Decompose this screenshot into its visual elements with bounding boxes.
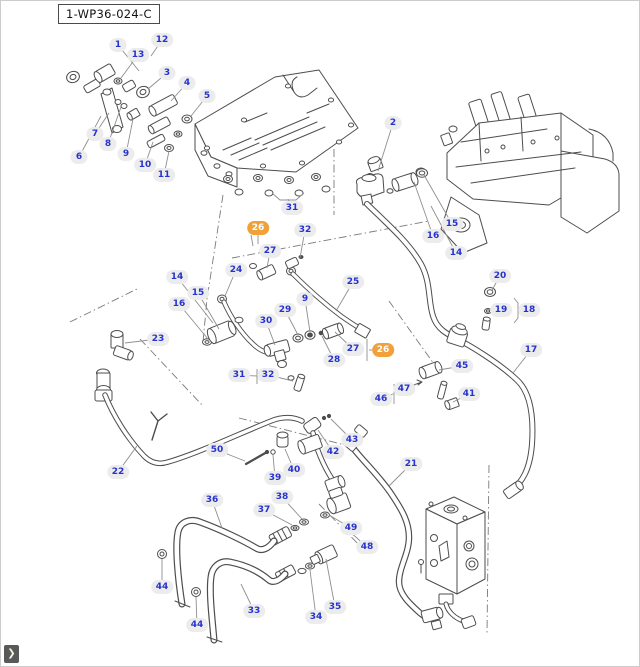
part-callout-44[interactable]: 44 — [151, 580, 173, 594]
parts-diagram-page: 1-WP36-024-C 112133457869101123126322724… — [0, 0, 640, 667]
part-callout-37[interactable]: 37 — [253, 503, 275, 517]
next-page-button[interactable]: ❯ — [4, 645, 19, 663]
part-callout-30[interactable]: 30 — [255, 314, 277, 328]
part-callout-11[interactable]: 11 — [153, 168, 175, 182]
part-callout-15[interactable]: 15 — [441, 217, 463, 231]
part-callout-3[interactable]: 3 — [159, 66, 176, 80]
part-callout-35[interactable]: 35 — [324, 600, 346, 614]
part-callout-2[interactable]: 2 — [385, 116, 402, 130]
part-callout-9[interactable]: 9 — [297, 292, 314, 306]
part-callout-48[interactable]: 48 — [356, 540, 378, 554]
diagram-code-label: 1-WP36-024-C — [58, 4, 160, 24]
hose-33 — [207, 562, 285, 642]
part-callout-16[interactable]: 16 — [422, 229, 444, 243]
part-callout-15[interactable]: 15 — [187, 286, 209, 300]
part-callout-23[interactable]: 23 — [147, 332, 169, 346]
chevron-right-icon: ❯ — [7, 648, 15, 659]
part-callout-19[interactable]: 19 — [490, 303, 512, 317]
part-callout-49[interactable]: 49 — [340, 521, 362, 535]
part-callout-22[interactable]: 22 — [107, 465, 129, 479]
part-callout-27[interactable]: 27 — [259, 244, 281, 258]
part-callout-20[interactable]: 20 — [489, 269, 511, 283]
part-callout-25[interactable]: 25 — [342, 275, 364, 289]
part-callout-4[interactable]: 4 — [179, 76, 196, 90]
mounting-plate — [195, 70, 358, 196]
part-callout-42[interactable]: 42 — [322, 445, 344, 459]
part-callout-33[interactable]: 33 — [243, 604, 265, 618]
part-callout-40[interactable]: 40 — [283, 463, 305, 477]
part-callout-9[interactable]: 9 — [118, 147, 135, 161]
part-callout-26[interactable]: 26 — [247, 221, 269, 235]
part-callout-14[interactable]: 14 — [166, 270, 188, 284]
part-callout-6[interactable]: 6 — [71, 150, 88, 164]
part-callout-1[interactable]: 1 — [110, 38, 127, 52]
part-callout-43[interactable]: 43 — [341, 433, 363, 447]
part-callout-38[interactable]: 38 — [271, 490, 293, 504]
part-callout-10[interactable]: 10 — [134, 158, 156, 172]
part-callout-21[interactable]: 21 — [400, 457, 422, 471]
part-callout-18[interactable]: 18 — [518, 303, 540, 317]
part-callout-29[interactable]: 29 — [274, 303, 296, 317]
inlet-fitting-group — [356, 155, 427, 205]
part-callout-14[interactable]: 14 — [445, 246, 467, 260]
part-callout-13[interactable]: 13 — [127, 48, 149, 62]
exploded-view-drawing — [1, 1, 640, 667]
connector-stack-group — [246, 414, 351, 582]
part-callout-36[interactable]: 36 — [201, 493, 223, 507]
part-callout-26[interactable]: 26 — [372, 343, 394, 357]
part-callout-12[interactable]: 12 — [151, 33, 173, 47]
part-callout-24[interactable]: 24 — [225, 263, 247, 277]
part-callout-45[interactable]: 45 — [451, 359, 473, 373]
part-callout-8[interactable]: 8 — [100, 137, 117, 151]
part-callout-39[interactable]: 39 — [264, 471, 286, 485]
part-callout-28[interactable]: 28 — [323, 353, 345, 367]
part-callout-34[interactable]: 34 — [305, 610, 327, 624]
part-callout-31[interactable]: 31 — [281, 201, 303, 215]
part-callout-47[interactable]: 47 — [393, 382, 415, 396]
part-callout-32[interactable]: 32 — [294, 223, 316, 237]
part-callout-17[interactable]: 17 — [520, 343, 542, 357]
part-callout-31[interactable]: 31 — [228, 368, 250, 382]
part-callout-41[interactable]: 41 — [458, 387, 480, 401]
part-callout-5[interactable]: 5 — [199, 89, 216, 103]
part-callout-32[interactable]: 32 — [257, 368, 279, 382]
part-callout-50[interactable]: 50 — [206, 443, 228, 457]
plate-fasteners — [224, 174, 331, 197]
part-callout-44[interactable]: 44 — [186, 618, 208, 632]
part-callout-46[interactable]: 46 — [370, 392, 392, 406]
part-callout-27[interactable]: 27 — [342, 342, 364, 356]
part-callout-16[interactable]: 16 — [168, 297, 190, 311]
